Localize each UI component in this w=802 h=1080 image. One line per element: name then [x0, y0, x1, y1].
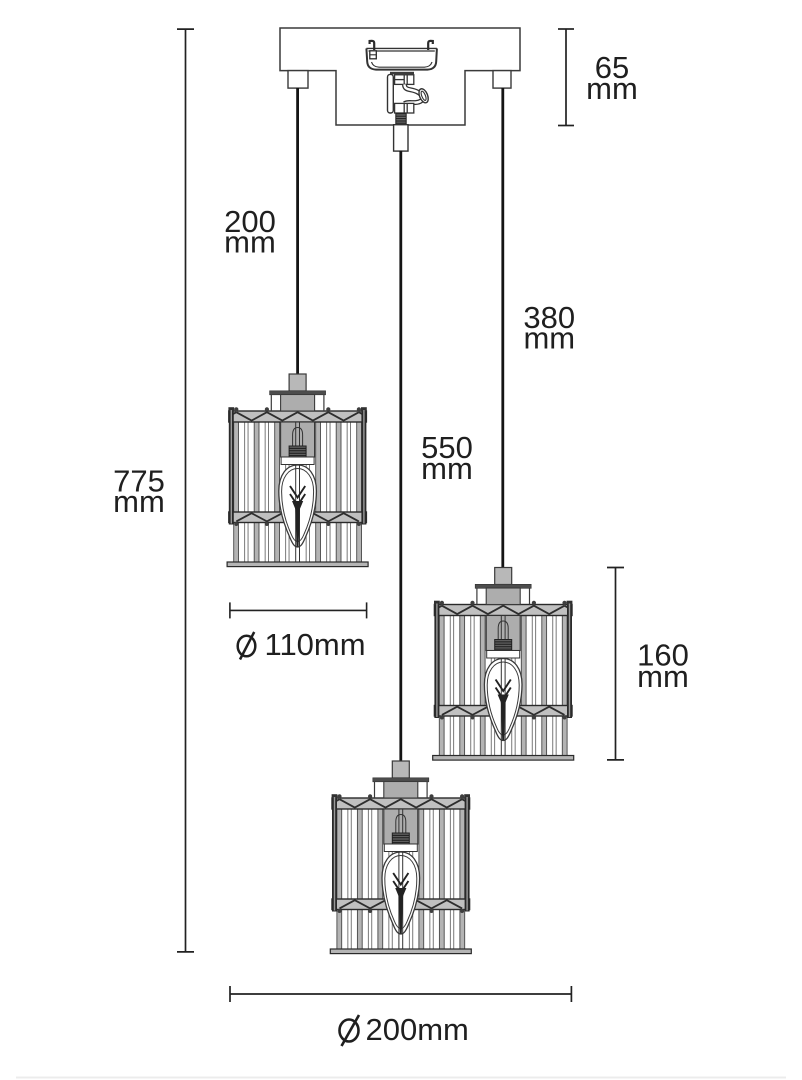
- svg-text:mm: mm: [113, 484, 165, 519]
- svg-text:mm: mm: [637, 659, 689, 694]
- svg-text:mm: mm: [224, 224, 276, 259]
- svg-text:mm: mm: [586, 71, 638, 106]
- svg-text:200mm: 200mm: [366, 1012, 469, 1047]
- svg-text:110mm: 110mm: [265, 627, 366, 662]
- svg-text:mm: mm: [421, 451, 473, 486]
- svg-text:mm: mm: [523, 321, 575, 356]
